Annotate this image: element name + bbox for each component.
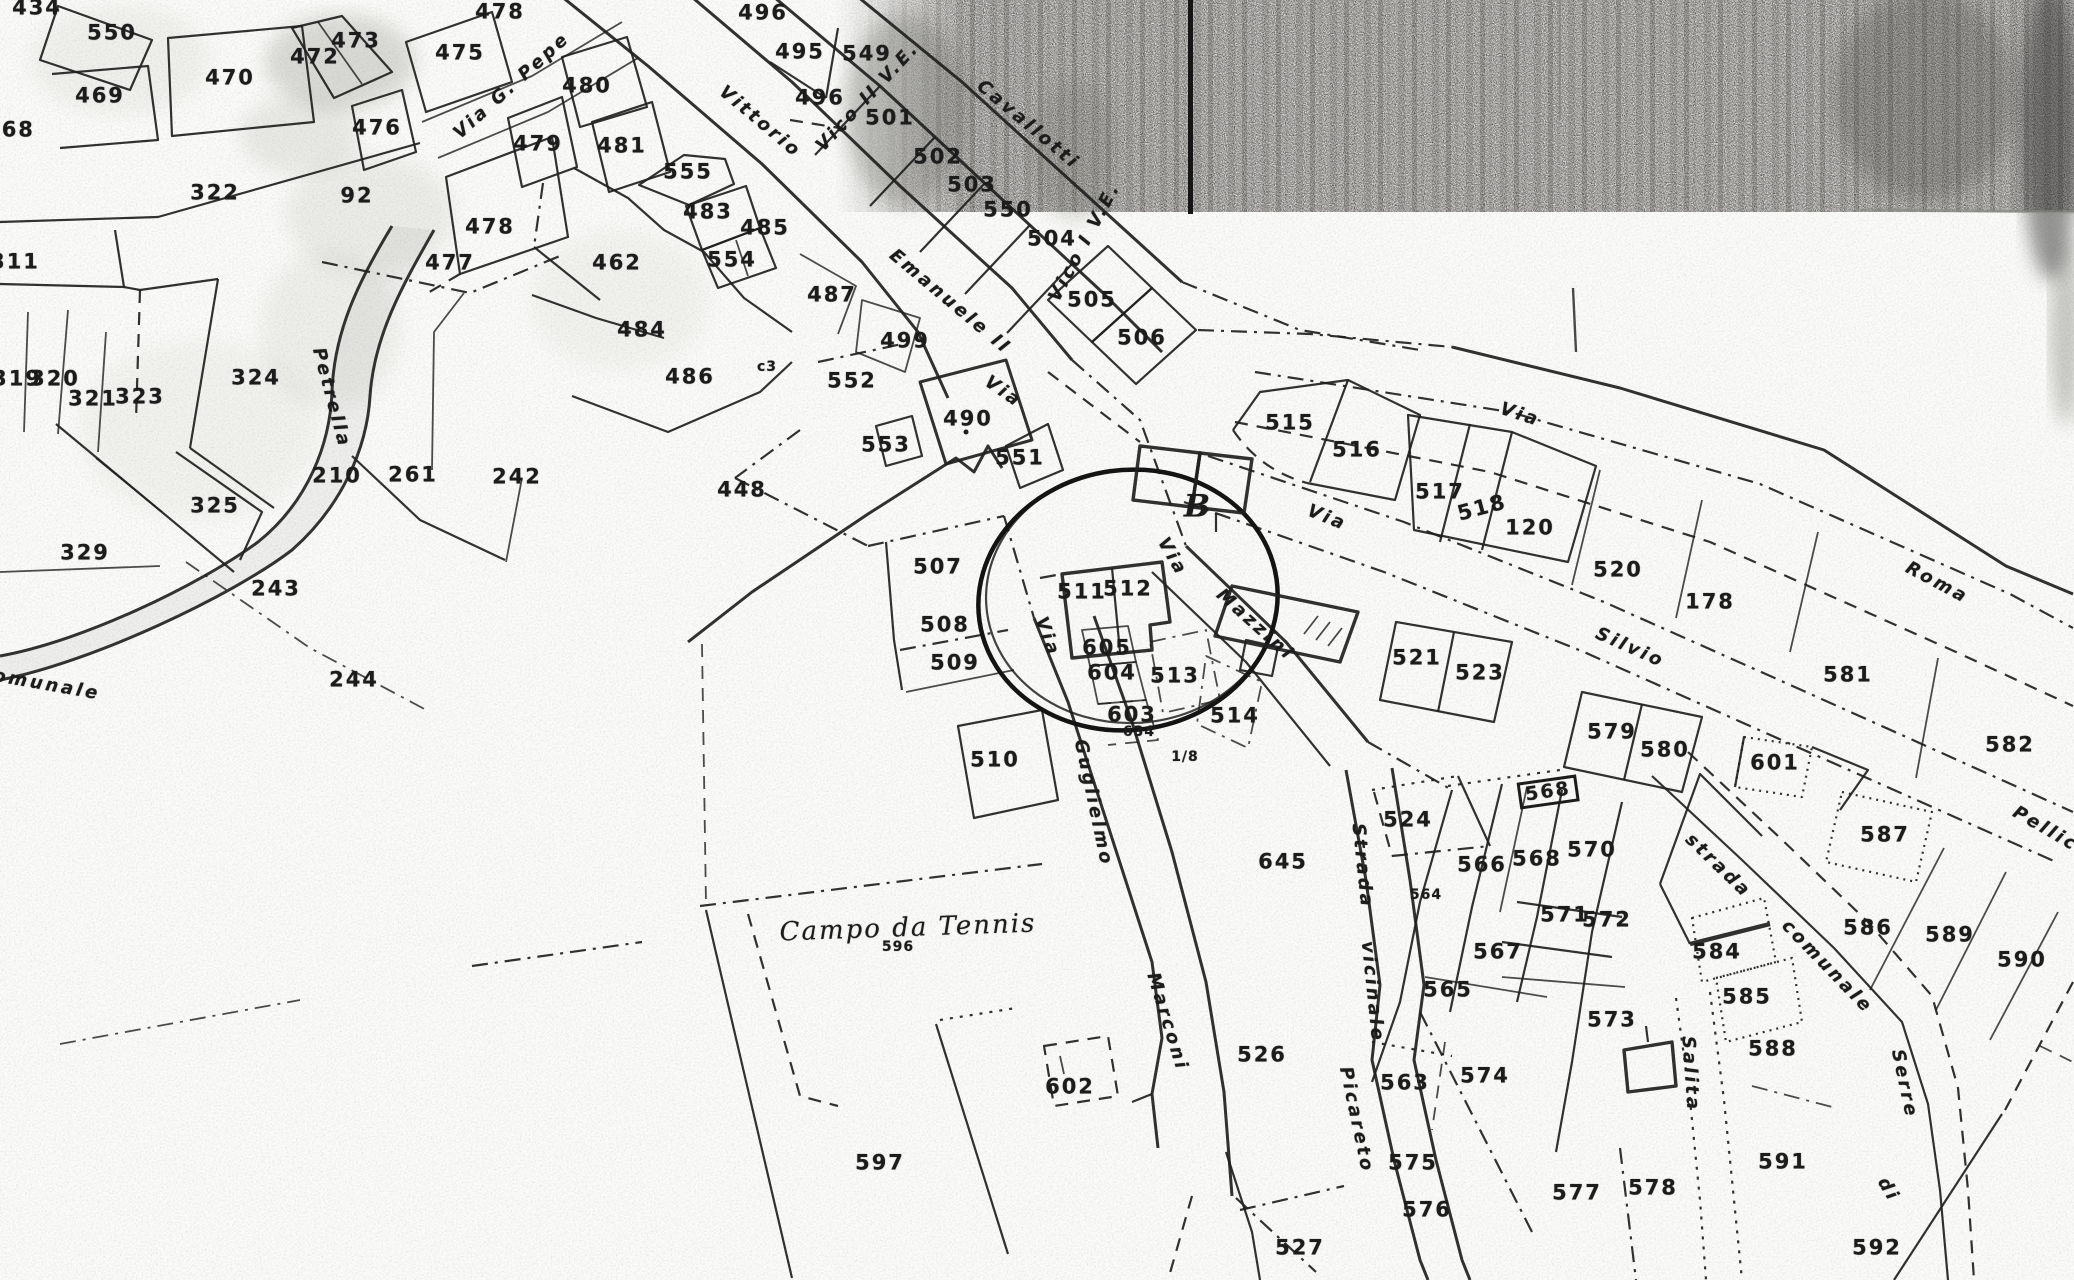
street-label-salita: Salita [1678, 1035, 1701, 1112]
parcel-label-526: 526 [1237, 1045, 1287, 1066]
street-label-pellico: Pellico [2010, 803, 2074, 862]
parcel-label-563: 563 [1380, 1073, 1430, 1094]
street-label-di: di [1874, 1175, 1902, 1206]
parcel-label-505: 505 [1067, 290, 1117, 311]
parcel-label-477: 477 [425, 253, 475, 274]
parcel-label-591: 591 [1758, 1152, 1808, 1173]
parcel-label-589: 589 [1925, 925, 1975, 946]
parcel-label-506: 506 [1117, 328, 1167, 349]
parcel-label-517: 517 [1415, 482, 1465, 503]
parcel-label-579: 579 [1587, 722, 1637, 743]
parcel-label-604: 604 [1087, 663, 1137, 684]
parcel-label-601: 601 [1750, 753, 1800, 774]
parcel-label-511: 511 [1057, 582, 1107, 603]
parcel-label-510: 510 [970, 750, 1020, 771]
parcel-label-553: 553 [861, 435, 911, 456]
parcel-label-242: 242 [492, 467, 542, 488]
parcel-label-478: 478 [465, 217, 515, 238]
parcel-label-483: 483 [683, 202, 733, 223]
parcel-label-603: 603 [1107, 705, 1157, 726]
parcel-label-490: 490 [943, 409, 993, 430]
parcel-label-261: 261 [388, 465, 438, 486]
labels-layer: 4345504694684704724734754784764794804815… [0, 0, 2074, 1280]
parcel-label-478: 478 [475, 2, 525, 23]
parcel-label-178: 178 [1685, 592, 1735, 613]
parcel-label-555: 555 [663, 162, 713, 183]
street-label-cavallotti: Cavallotti [973, 77, 1082, 173]
parcel-label-501: 501 [865, 108, 915, 129]
parcel-label-486: 486 [665, 367, 715, 388]
parcel-label-573: 573 [1587, 1010, 1637, 1031]
street-label-via: Via [1498, 400, 1542, 430]
parcel-label-581: 581 [1823, 665, 1873, 686]
parcel-label-496: 496 [738, 3, 788, 24]
parcel-label-554: 554 [707, 250, 757, 271]
parcel-label-570: 570 [1567, 840, 1617, 861]
parcel-label-323: 323 [115, 387, 165, 408]
annotation-letter-b: B [1184, 492, 1212, 523]
parcel-label-572: 572 [1582, 910, 1632, 931]
parcel-label-516: 516 [1332, 440, 1382, 461]
street-label-roma: Roma [1903, 559, 1972, 607]
scanned-map-page: 4345504694684704724734754784764794804815… [0, 0, 2074, 1280]
street-label-mazzini: Mazzini [1213, 586, 1297, 664]
parcel-label-468: 468 [0, 120, 35, 141]
street-label-vittorio: Vittorio [716, 83, 805, 162]
parcel-label-565: 565 [1423, 980, 1473, 1001]
parcel-label-577: 577 [1552, 1183, 1602, 1204]
street-label-serre: Serre [1888, 1048, 1920, 1120]
parcel-label-586: 586 [1843, 918, 1893, 939]
parcel-label-495: 495 [775, 42, 825, 63]
parcel-label-329: 329 [60, 543, 110, 564]
parcel-label-520: 520 [1593, 560, 1643, 581]
parcel-label-485: 485 [740, 218, 790, 239]
parcel-label-475: 475 [435, 43, 485, 64]
parcel-label-448: 448 [717, 480, 767, 501]
parcel-label-527: 527 [1275, 1238, 1325, 1259]
street-label-strada: strada [1682, 831, 1754, 902]
parcel-label-481: 481 [597, 136, 647, 157]
street-label-via: Via [981, 373, 1025, 411]
parcel-label-512: 512 [1103, 579, 1153, 600]
street-label-strada: Strada [1349, 822, 1376, 909]
parcel-label-476: 476 [352, 118, 402, 139]
parcel-label-523: 523 [1455, 663, 1505, 684]
parcel-label-503: 503 [947, 175, 997, 196]
parcel-label-568: 568 [1512, 849, 1562, 870]
parcel-label-564: 564 [1410, 888, 1442, 902]
parcel-label-514: 514 [1210, 706, 1260, 727]
parcel-label-584: 584 [1692, 942, 1742, 963]
parcel-label-92: 92 [340, 186, 373, 207]
parcel-label-524: 524 [1383, 810, 1433, 831]
parcel-label-321: 321 [68, 389, 118, 410]
parcel-label-566: 566 [1457, 855, 1507, 876]
parcel-label-585: 585 [1722, 987, 1772, 1008]
street-label-silvio: Silvio [1593, 625, 1668, 671]
parcel-label-502: 502 [913, 147, 963, 168]
street-label-picareto: Picareto [1336, 1065, 1376, 1175]
parcel-label-473: 473 [331, 31, 381, 52]
parcel-label-462: 462 [592, 253, 642, 274]
parcel-label-580: 580 [1640, 740, 1690, 761]
parcel-label-587: 587 [1860, 825, 1910, 846]
parcel-label-568: 568 [1517, 774, 1580, 809]
parcel-label-311: 311 [0, 252, 40, 273]
parcel-label-582: 582 [1985, 735, 2035, 756]
parcel-label-575: 575 [1388, 1153, 1438, 1174]
street-label-marconi: Marconi [1143, 971, 1190, 1074]
parcel-label-470: 470 [205, 68, 255, 89]
parcel-label-578: 578 [1628, 1178, 1678, 1199]
parcel-label-434: 434 [12, 0, 62, 19]
parcel-label-210: 210 [312, 466, 362, 487]
parcel-label-509: 509 [930, 653, 980, 674]
parcel-label-588: 588 [1748, 1039, 1798, 1060]
street-label-comunale: comunale [0, 665, 102, 704]
parcel-label-551: 551 [995, 448, 1045, 469]
parcel-label-496: 496 [795, 88, 845, 109]
parcel-label-550: 550 [87, 23, 137, 44]
parcel-label-487: 487 [807, 285, 857, 306]
parcel-label-244: 244 [329, 670, 379, 691]
parcel-label-507: 507 [913, 557, 963, 578]
parcel-label-592: 592 [1852, 1238, 1902, 1259]
parcel-label-515: 515 [1265, 413, 1315, 434]
parcel-label-590: 590 [1997, 950, 2047, 971]
street-label-via: Via [1154, 535, 1190, 579]
parcel-label-645: 645 [1258, 852, 1308, 873]
street-label-via: Via [1305, 502, 1350, 534]
parcel-label-325: 325 [190, 496, 240, 517]
parcel-label-597: 597 [855, 1153, 905, 1174]
parcel-label-574: 574 [1460, 1066, 1510, 1087]
parcel-label-567: 567 [1473, 942, 1523, 963]
parcel-label-c3: c3 [757, 360, 777, 374]
parcel-label-480: 480 [562, 76, 612, 97]
parcel-label-243: 243 [251, 579, 301, 600]
parcel-label-1-8: 1/8 [1171, 750, 1199, 764]
parcel-label-324: 324 [231, 368, 281, 389]
parcel-label-605: 605 [1082, 638, 1132, 659]
parcel-label-499: 499 [880, 331, 930, 352]
parcel-label-550: 550 [983, 200, 1033, 221]
parcel-label-513: 513 [1150, 666, 1200, 687]
place-label-campo-da-tennis: Campo da Tennis [779, 911, 1037, 946]
parcel-label-576: 576 [1402, 1200, 1452, 1221]
street-label-petrella: Petrella [309, 346, 353, 450]
parcel-label-521: 521 [1392, 648, 1442, 669]
parcel-label-322: 322 [190, 183, 240, 204]
parcel-label-479: 479 [513, 134, 563, 155]
parcel-label-552: 552 [827, 371, 877, 392]
parcel-label-602: 602 [1045, 1077, 1095, 1098]
parcel-label-484: 484 [617, 320, 667, 341]
street-label-guglielmo: Guglielmo [1071, 738, 1115, 868]
street-label-vicinale: vicinale [1358, 940, 1387, 1043]
parcel-label-634: 634 [1123, 725, 1155, 739]
street-label-via: Via [1032, 615, 1063, 660]
parcel-label-469: 469 [75, 86, 125, 107]
parcel-label-508: 508 [920, 615, 970, 636]
parcel-label-120: 120 [1505, 518, 1555, 539]
